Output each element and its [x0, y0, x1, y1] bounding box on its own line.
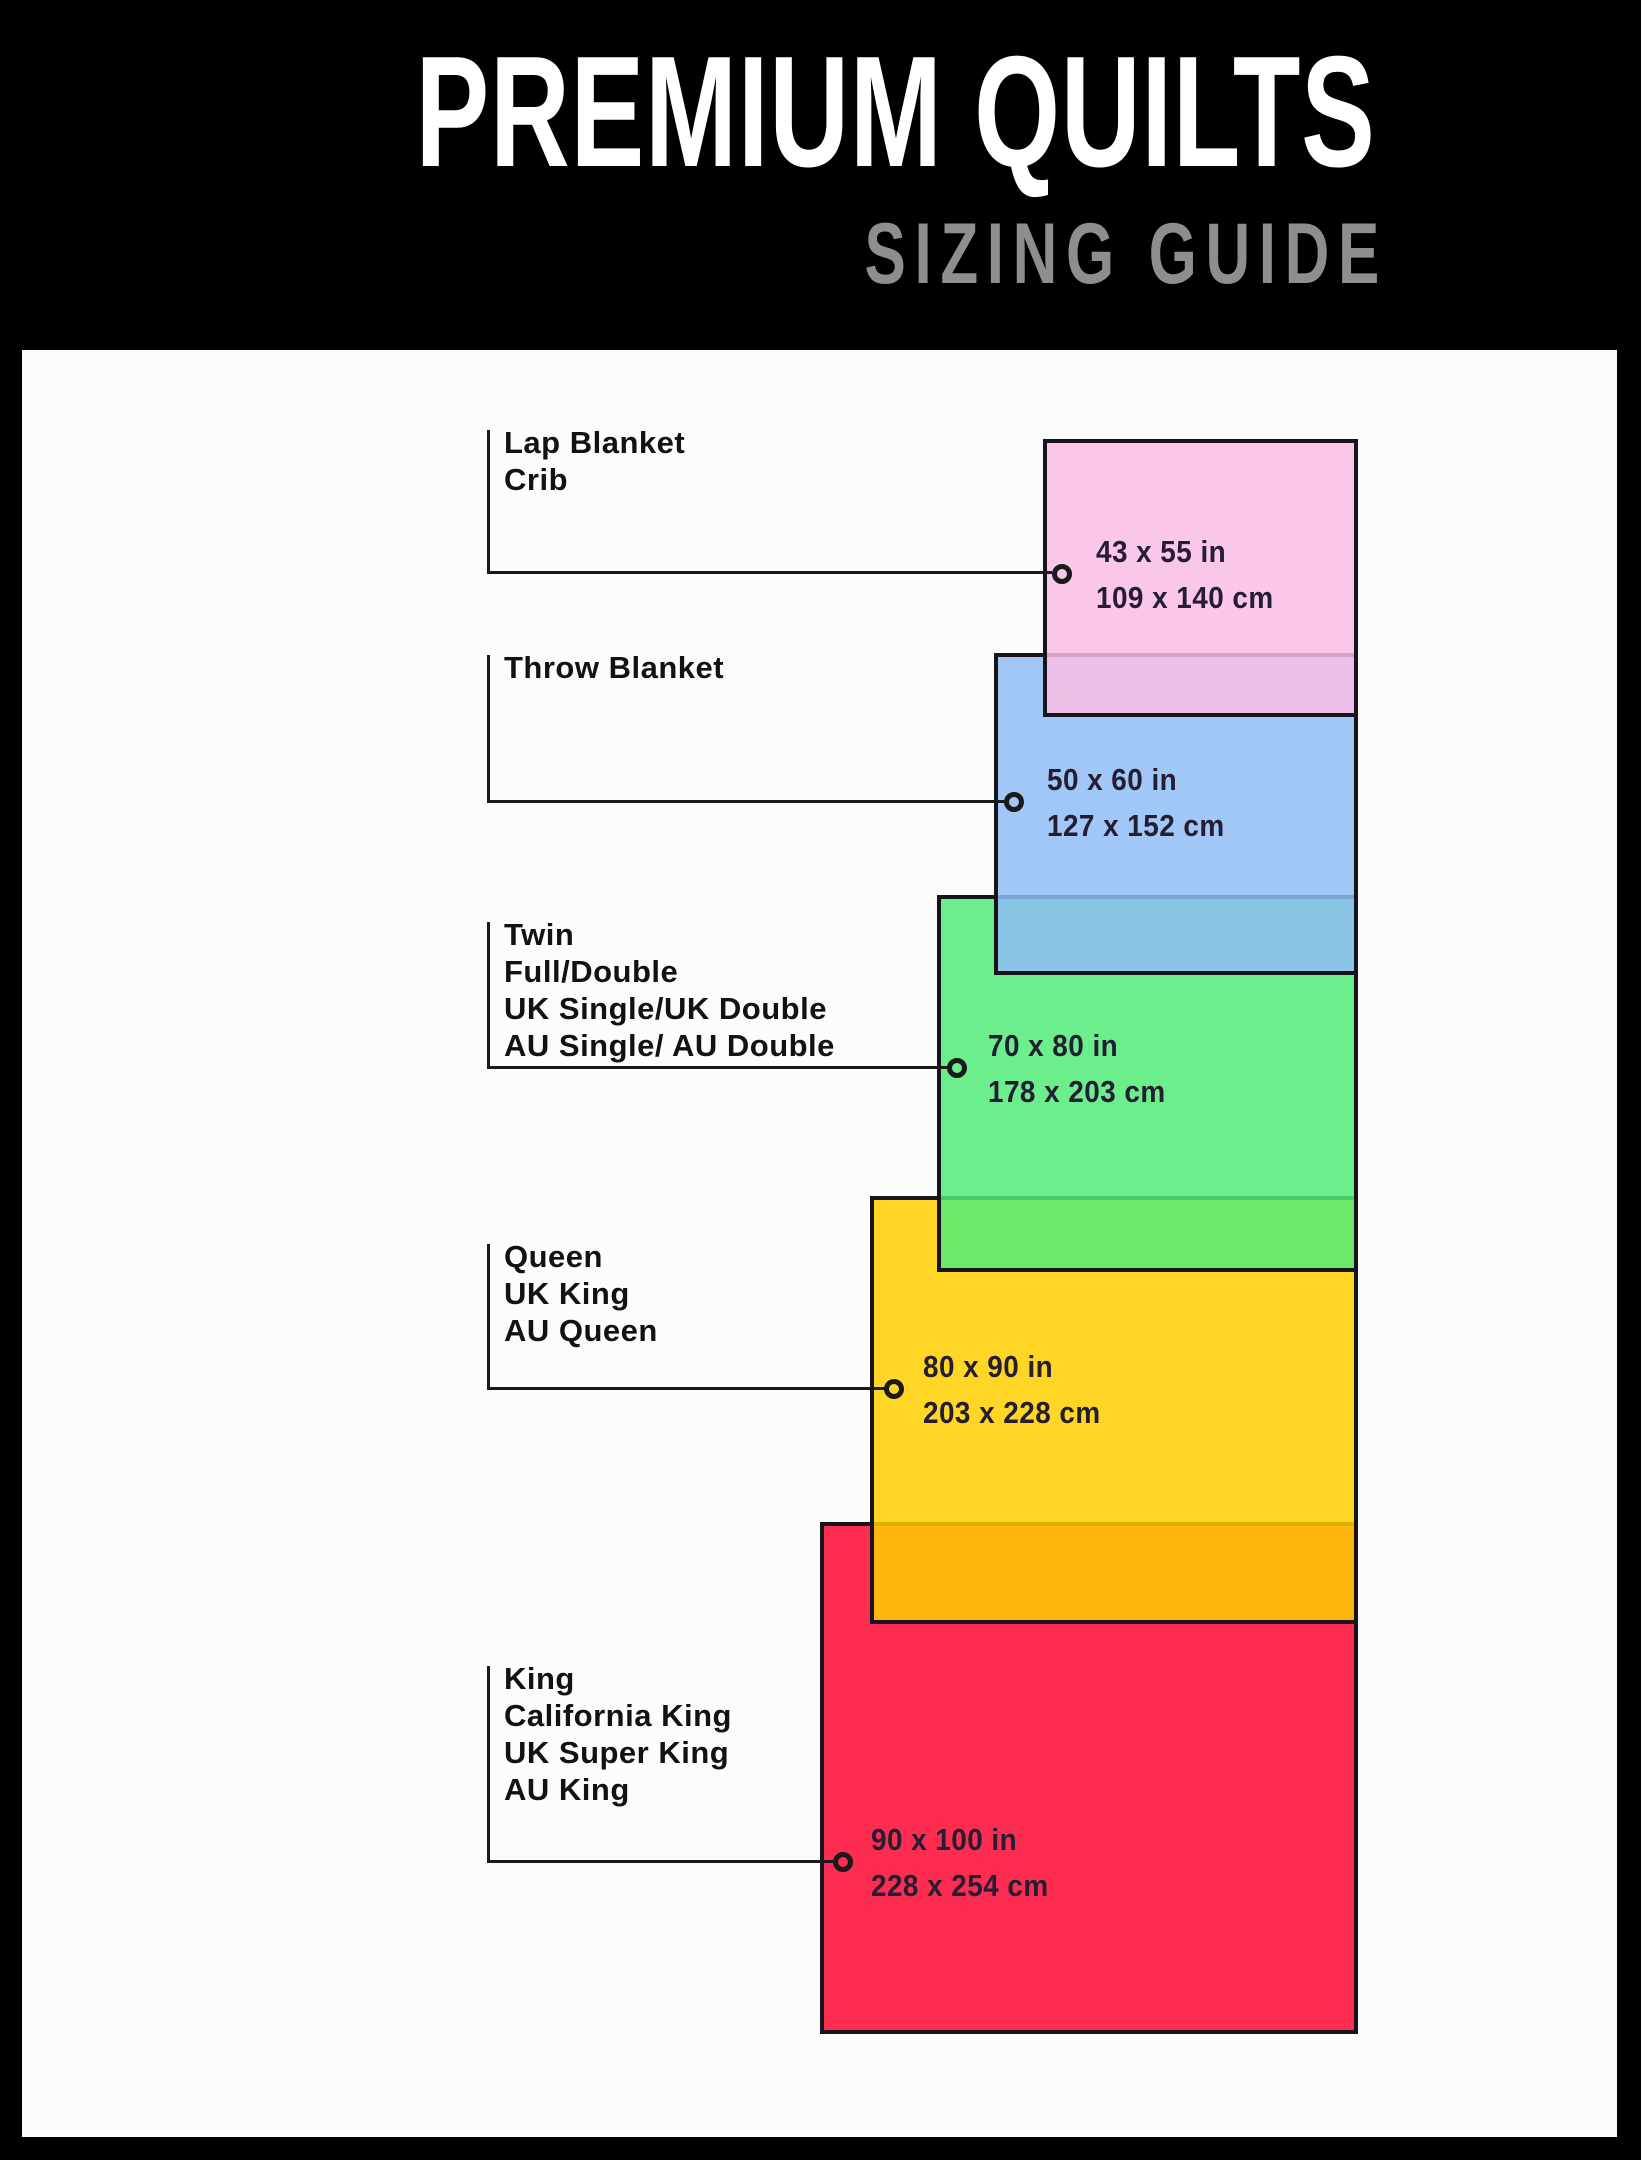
label-line: AU Single/ AU Double — [504, 1027, 974, 1064]
leader-endpoint-ring — [833, 1852, 853, 1872]
leader-line-horizontal — [487, 1066, 948, 1069]
dimension-cm: 228 x 254 cm — [871, 1863, 1049, 1909]
label-line: AU King — [504, 1771, 974, 1808]
leader-endpoint-ring — [1052, 564, 1072, 584]
size-label-king: King California King UK Super King AU Ki… — [504, 1660, 974, 1808]
dimensions-king: 90 x 100 in 228 x 254 cm — [871, 1817, 1049, 1909]
dimension-inches: 43 x 55 in — [1096, 529, 1274, 575]
label-line: Crib — [504, 461, 974, 498]
label-line: UK King — [504, 1275, 974, 1312]
label-line: King — [504, 1660, 974, 1697]
leader-line-vertical — [487, 655, 490, 801]
leader-line-vertical — [487, 1666, 490, 1861]
label-line: California King — [504, 1697, 974, 1734]
leader-line-vertical — [487, 430, 490, 572]
quilt-sizing-infographic: PREMIUM QUILTS SIZING GUIDE Lap Blanket … — [0, 0, 1641, 2160]
dimension-cm: 127 x 152 cm — [1047, 803, 1225, 849]
dimension-inches: 70 x 80 in — [988, 1023, 1166, 1069]
label-line: Full/Double — [504, 953, 974, 990]
dimension-inches: 80 x 90 in — [923, 1344, 1101, 1390]
leader-line-vertical — [487, 1244, 490, 1388]
dimensions-queen: 80 x 90 in 203 x 228 cm — [923, 1344, 1101, 1436]
label-line: Queen — [504, 1238, 974, 1275]
page-title: PREMIUM QUILTS — [416, 33, 1376, 191]
size-label-twin: Twin Full/Double UK Single/UK Double AU … — [504, 916, 974, 1064]
leader-endpoint-ring — [1004, 792, 1024, 812]
size-label-throw-blanket: Throw Blanket — [504, 649, 974, 686]
leader-line-horizontal — [487, 1387, 885, 1390]
label-line: Twin — [504, 916, 974, 953]
dimension-cm: 178 x 203 cm — [988, 1069, 1166, 1115]
dimension-inches: 90 x 100 in — [871, 1817, 1049, 1863]
dimension-cm: 203 x 228 cm — [923, 1390, 1101, 1436]
dimensions-lap-blanket: 43 x 55 in 109 x 140 cm — [1096, 529, 1274, 621]
label-line: UK Single/UK Double — [504, 990, 974, 1027]
leader-line-horizontal — [487, 800, 1005, 803]
leader-line-horizontal — [487, 571, 1052, 574]
leader-line-horizontal — [487, 1860, 834, 1863]
size-label-lap-blanket: Lap Blanket Crib — [504, 424, 974, 498]
leader-endpoint-ring — [884, 1379, 904, 1399]
size-label-queen: Queen UK King AU Queen — [504, 1238, 974, 1349]
dimension-inches: 50 x 60 in — [1047, 757, 1225, 803]
label-line: Lap Blanket — [504, 424, 974, 461]
page-subtitle: SIZING GUIDE — [865, 211, 1388, 297]
dimensions-twin: 70 x 80 in 178 x 203 cm — [988, 1023, 1166, 1115]
dimension-cm: 109 x 140 cm — [1096, 575, 1274, 621]
leader-endpoint-ring — [947, 1058, 967, 1078]
label-line: AU Queen — [504, 1312, 974, 1349]
dimensions-throw-blanket: 50 x 60 in 127 x 152 cm — [1047, 757, 1225, 849]
label-line: Throw Blanket — [504, 649, 974, 686]
leader-line-vertical — [487, 922, 490, 1067]
label-line: UK Super King — [504, 1734, 974, 1771]
